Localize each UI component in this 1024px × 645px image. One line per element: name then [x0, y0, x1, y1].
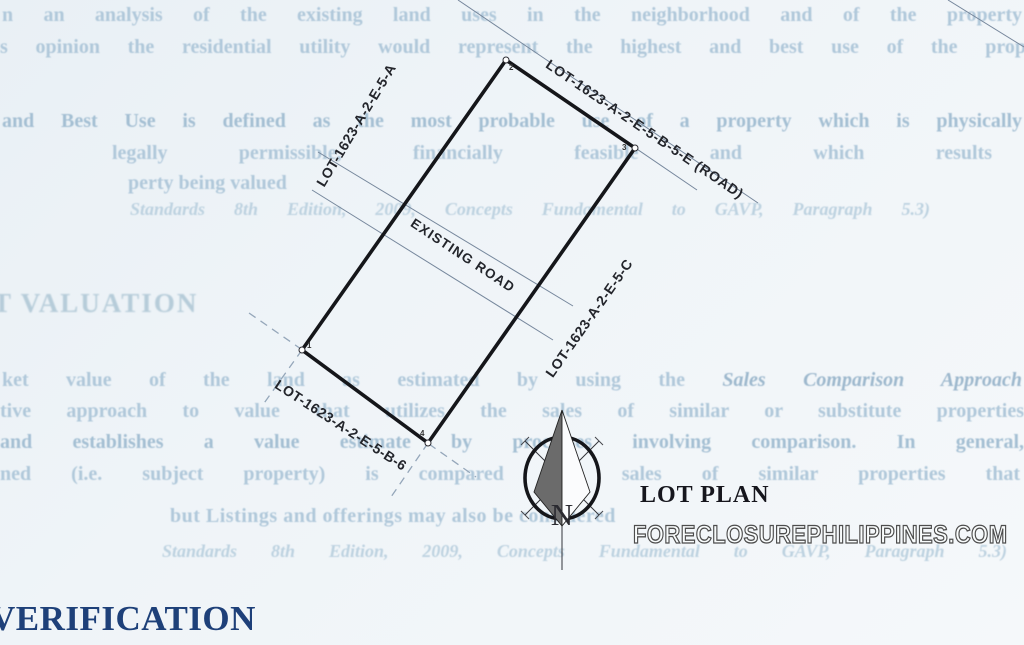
- north-compass: [521, 410, 603, 570]
- foreclosurephilippines-watermark: FORECLOSUREPHILIPPINES.COM: [633, 521, 1007, 550]
- corner-number-2: 2: [509, 63, 513, 72]
- corner-number-3: 3: [622, 143, 626, 152]
- corner-number-1: 1: [307, 341, 311, 350]
- scanned-appraisal-page: n an analysis of the existing land uses …: [0, 0, 1024, 645]
- corner-survey-line: [948, 0, 1024, 47]
- verification-heading: VERIFICATION: [0, 599, 256, 639]
- compass-north-letter: N: [548, 497, 576, 533]
- dashed-extension-lines: [249, 313, 476, 497]
- corner-number-4: 4: [420, 429, 424, 438]
- lot-plan-caption: LOT PLAN: [640, 482, 770, 509]
